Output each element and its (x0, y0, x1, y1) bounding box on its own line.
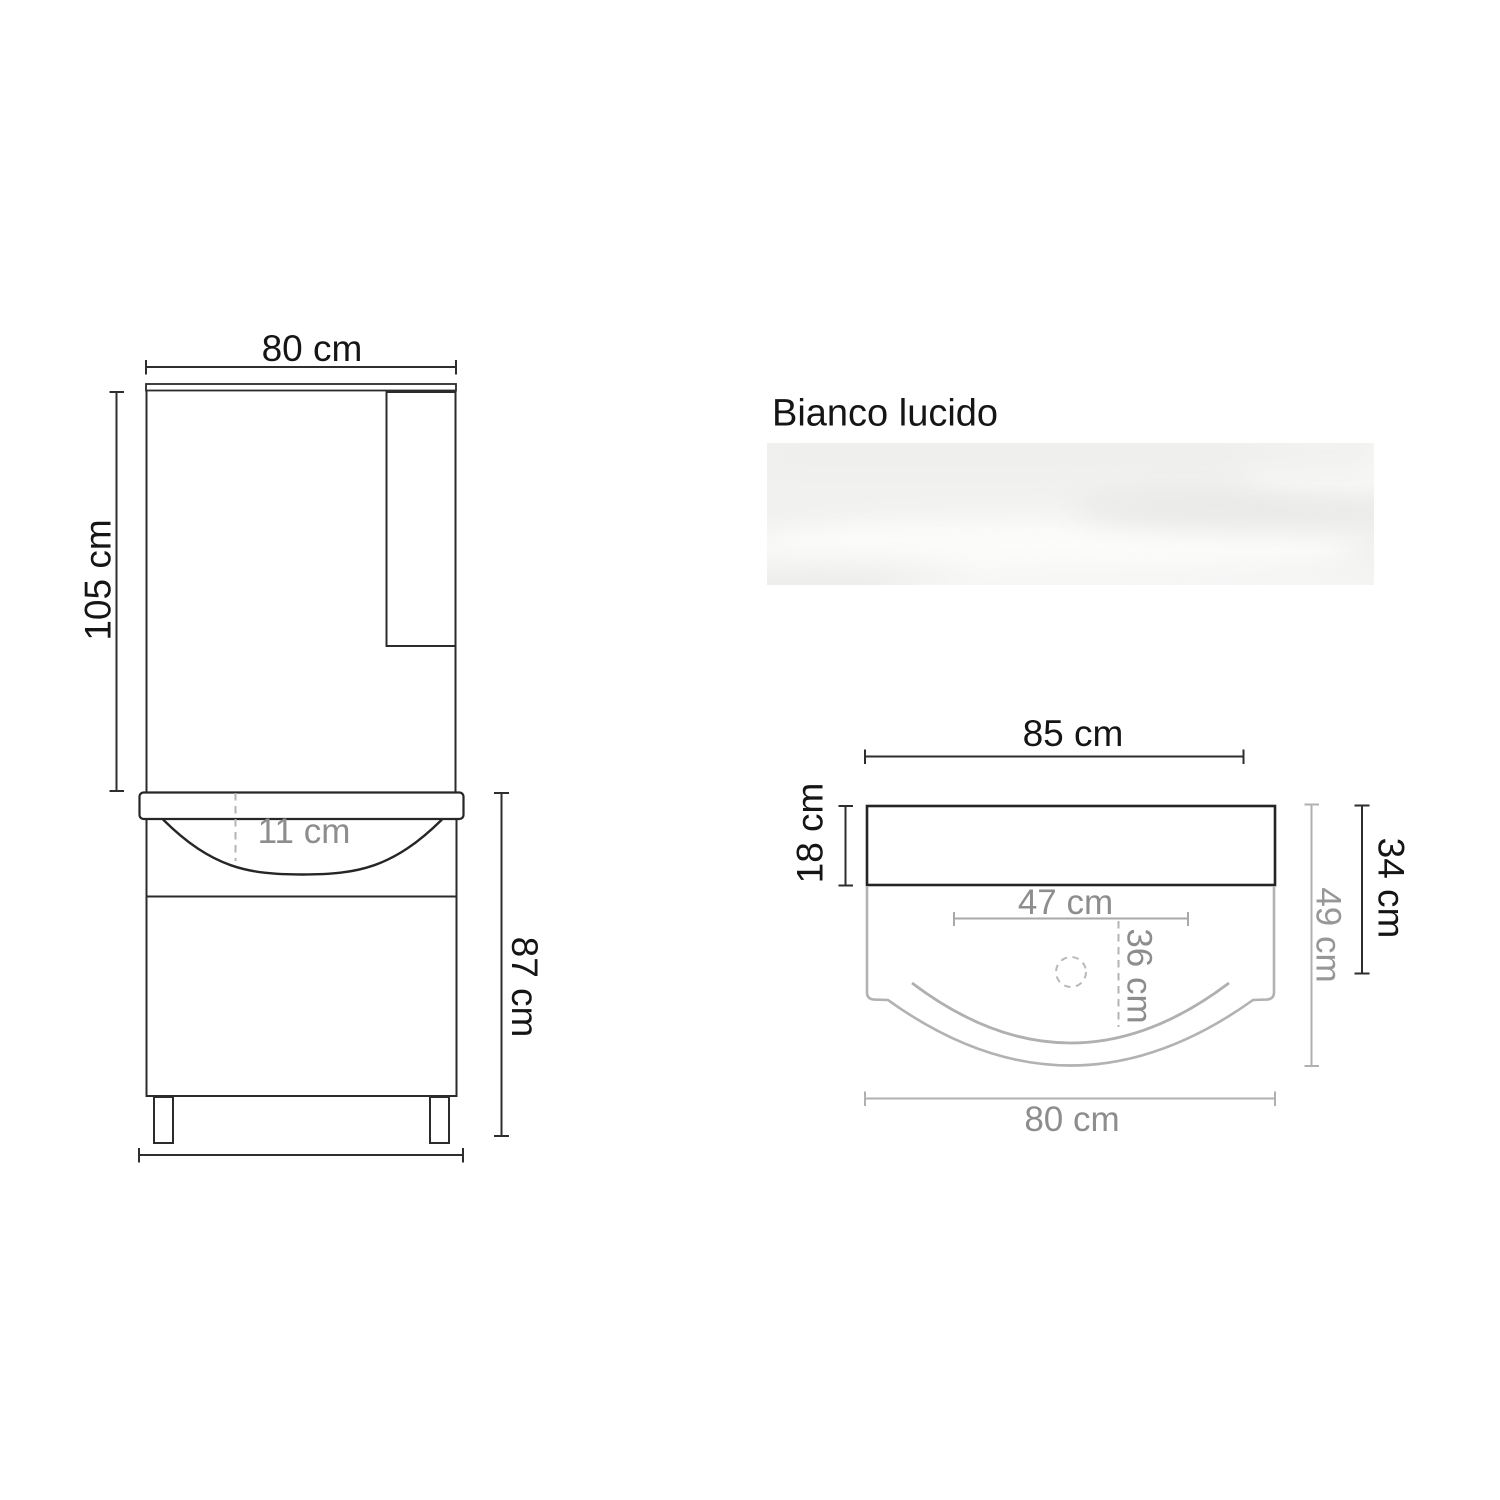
svg-text:105 cm: 105 cm (78, 519, 119, 640)
svg-text:80 cm: 80 cm (262, 328, 363, 369)
svg-text:85 cm: 85 cm (1023, 713, 1124, 754)
svg-text:18 cm: 18 cm (790, 783, 831, 884)
svg-text:80 cm: 80 cm (1024, 1100, 1119, 1139)
svg-text:34 cm: 34 cm (1371, 838, 1412, 939)
svg-text:47 cm: 47 cm (1018, 883, 1113, 922)
svg-text:87 cm: 87 cm (504, 937, 545, 1038)
svg-text:11 cm: 11 cm (258, 812, 351, 851)
svg-text:Bianco lucido: Bianco lucido (772, 393, 998, 435)
svg-text:36 cm: 36 cm (1119, 928, 1158, 1023)
svg-text:49 cm: 49 cm (1308, 887, 1347, 982)
